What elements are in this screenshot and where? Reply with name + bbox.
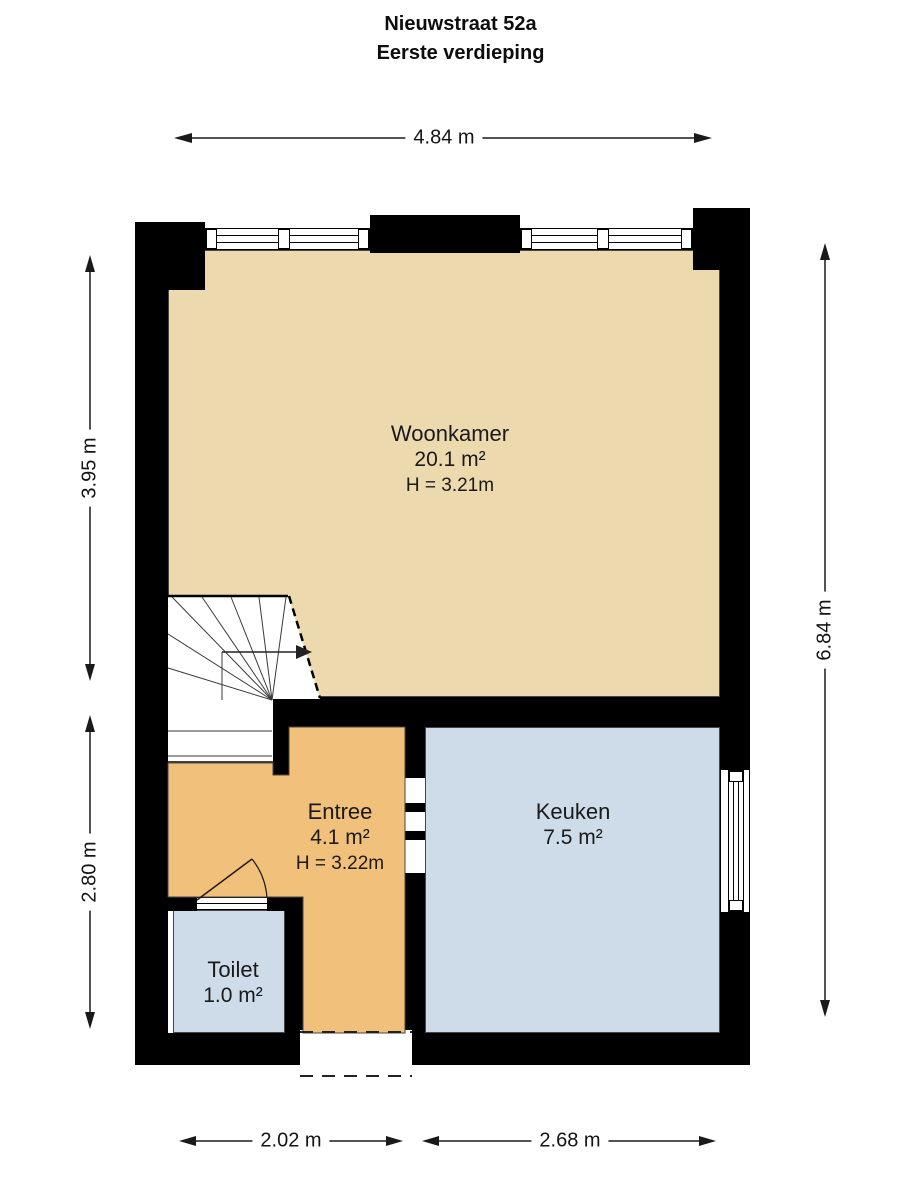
wall-bottom	[135, 1033, 750, 1065]
room-label-toilet: Toilet 1.0 m²	[203, 956, 263, 1009]
opening-front-entrance	[300, 1030, 412, 1078]
opening-dash	[405, 803, 425, 812]
floorplan: Woonkamer 20.1 m² H = 3.21m Entree 4.1 m…	[0, 0, 921, 1200]
window-frame-cap	[681, 229, 692, 249]
wall-corner-top-left	[135, 222, 205, 290]
toilet-doorway-threshold	[197, 897, 267, 910]
room-name: Woonkamer	[391, 420, 509, 447]
toilet-door	[197, 859, 267, 900]
room-label-entree: Entree 4.1 m² H = 3.22m	[296, 798, 384, 876]
wall-right	[720, 218, 750, 1065]
wall-corner-top-right	[693, 208, 750, 270]
wall-toilet-top-left-stub	[168, 897, 197, 911]
room-ceiling-height: H = 3.21m	[391, 473, 509, 498]
room-area: 1.0 m²	[203, 983, 263, 1009]
wall-stair-stub	[273, 697, 289, 775]
room-keuken-floor	[425, 727, 720, 1033]
opening-entree-keuken	[405, 778, 425, 873]
window-keuken	[728, 770, 744, 912]
room-name: Keuken	[536, 798, 611, 825]
wall-top-middle	[370, 215, 520, 253]
room-ceiling-height: H = 3.22m	[296, 851, 384, 876]
window-frame-cap	[358, 229, 369, 249]
room-label-keuken: Keuken 7.5 m²	[536, 798, 611, 851]
room-area: 20.1 m²	[391, 447, 509, 473]
wall-entree-keuken	[405, 727, 425, 1033]
wall-toilet-right	[285, 897, 303, 1033]
window-mullion	[278, 229, 290, 249]
wall-woonkamer-divider	[273, 697, 750, 727]
room-area: 4.1 m²	[296, 825, 384, 851]
room-name: Entree	[296, 798, 384, 825]
opening-dash	[405, 831, 425, 840]
room-label-woonkamer: Woonkamer 20.1 m² H = 3.21m	[391, 420, 509, 498]
wall-left	[135, 222, 168, 1065]
window-top-left	[205, 228, 370, 250]
window-top-right	[520, 228, 693, 250]
window-mullion	[597, 229, 609, 249]
window-frame-cap	[521, 229, 532, 249]
room-name: Toilet	[203, 956, 263, 983]
window-frame-cap	[729, 771, 743, 782]
room-area: 7.5 m²	[536, 825, 611, 851]
window-frame-cap	[729, 900, 743, 911]
window-frame-cap	[206, 229, 217, 249]
floorplan-page: { "title": { "line1": "Nieuwstraat 52a",…	[0, 0, 921, 1200]
